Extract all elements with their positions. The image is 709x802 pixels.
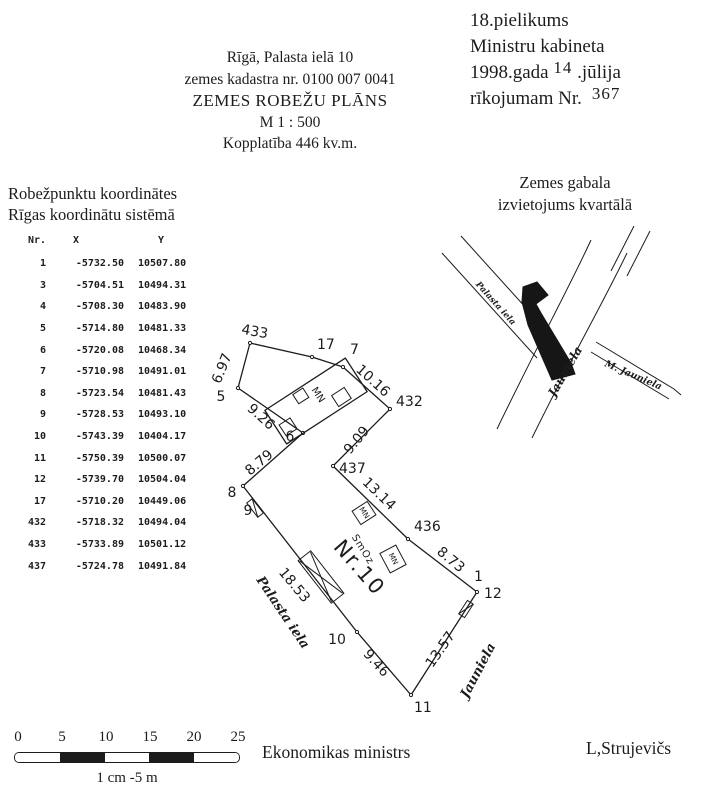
svg-text:MN: MN bbox=[387, 551, 401, 566]
boundary-point-marker bbox=[248, 341, 251, 344]
point-label-17: 17 bbox=[317, 337, 335, 353]
boundary-point-marker bbox=[241, 484, 244, 487]
address-line: Rīgā, Palasta ielā 10 bbox=[140, 47, 440, 69]
annex-line-1: 18.pielikums bbox=[470, 8, 621, 34]
point-label-433: 433 bbox=[240, 322, 269, 342]
scale-bar-strip bbox=[14, 752, 240, 763]
cadastre-line: zemes kadastra nr. 0100 007 0041 bbox=[140, 69, 440, 91]
scale-tick: 10 bbox=[95, 729, 117, 746]
location-map-heading: Zemes gabala izvietojums kvartālā bbox=[455, 172, 675, 216]
page-title: ZEMES ROBEŽU PLĀNS bbox=[140, 90, 440, 112]
boundary-point-marker bbox=[355, 630, 358, 633]
table-row: 9-5728.5310493.10 bbox=[12, 404, 202, 426]
building-mn-label: MN bbox=[309, 385, 327, 405]
minister-title: Ekonomikas ministrs bbox=[262, 742, 410, 763]
scanned-land-plan-page: 18.pielikums Ministru kabineta 1998.gada… bbox=[0, 0, 709, 802]
table-row: 432-5718.3210494.04 bbox=[12, 512, 202, 534]
distance-label: 13.57 bbox=[423, 629, 459, 671]
table-row: 11-5750.3910500.07 bbox=[12, 447, 202, 469]
scale-tick: 0 bbox=[7, 729, 29, 746]
table-row: 10-5743.3910404.17 bbox=[12, 426, 202, 448]
table-row: 5-5714.8010481.33 bbox=[12, 318, 202, 340]
scale-line: M 1 : 500 bbox=[140, 112, 440, 134]
point-label-8: 8 bbox=[228, 485, 237, 501]
distance-label: 9.46 bbox=[360, 646, 393, 680]
scale-tick: 5 bbox=[51, 729, 73, 746]
small-structure-mn: MN bbox=[380, 545, 406, 573]
point-label-9: 9 bbox=[244, 503, 253, 519]
coordinates-heading: Robežpunktu koordinātes Rīgas koordinātu… bbox=[8, 183, 177, 225]
distance-label: 8.79 bbox=[242, 447, 276, 479]
scale-bar: 0 5 10 15 20 25 1 cm -5 m bbox=[13, 729, 241, 793]
point-label-436: 436 bbox=[414, 519, 441, 535]
handwritten-order-number: 367 bbox=[592, 81, 621, 107]
annex-line-4: rīkojumam Nr.367 bbox=[470, 86, 621, 112]
handwritten-day: 14 bbox=[553, 55, 572, 81]
boundary-point-marker bbox=[341, 365, 344, 368]
scale-tick: 25 bbox=[227, 729, 249, 746]
boundary-point-marker bbox=[236, 386, 239, 389]
street-upper-stroke bbox=[611, 226, 634, 271]
boundary-tick bbox=[459, 600, 474, 617]
distance-label: 6.97 bbox=[209, 351, 236, 386]
table-row: 437-5724.7810491.84 bbox=[12, 555, 202, 577]
point-label-12: 12 bbox=[484, 586, 502, 602]
boundary-point-marker bbox=[331, 464, 334, 467]
table-row: 6-5720.0810468.34 bbox=[12, 339, 202, 361]
table-row: 7-5710.9810491.01 bbox=[12, 361, 202, 383]
distance-label: 9.09 bbox=[341, 423, 373, 457]
point-label-11: 11 bbox=[414, 700, 432, 716]
annex-reference-block: 18.pielikums Ministru kabineta 1998.gada… bbox=[470, 8, 621, 112]
area-line: Kopplatība 446 kv.m. bbox=[140, 133, 440, 155]
boundary-point-marker bbox=[409, 693, 412, 696]
scale-tick: 20 bbox=[183, 729, 205, 746]
scale-tick: 15 bbox=[139, 729, 161, 746]
boundary-plan-drawing: MN MN MN 433 17 7 432 437 436 1 bbox=[200, 300, 510, 720]
boundary-point-marker bbox=[310, 355, 313, 358]
map-street-label-m-jauniela: M. Jauniela bbox=[602, 358, 663, 392]
point-label-10: 10 bbox=[328, 632, 346, 648]
boundary-point-marker bbox=[388, 407, 391, 410]
coordinates-table-header: Nr. X Y bbox=[12, 227, 202, 253]
boundary-point-marker bbox=[406, 537, 409, 540]
table-row: 3-5704.5110494.31 bbox=[12, 275, 202, 297]
table-row: 17-5710.2010449.06 bbox=[12, 491, 202, 513]
point-label-437: 437 bbox=[339, 461, 366, 477]
title-block: Rīgā, Palasta ielā 10 zemes kadastra nr.… bbox=[140, 47, 440, 155]
minister-name: L,Strujevičs bbox=[586, 738, 671, 759]
annex-line-2: Ministru kabineta bbox=[470, 34, 621, 60]
building-outline: MN bbox=[265, 358, 367, 444]
scale-caption: 1 cm -5 m bbox=[13, 770, 241, 787]
svg-text:MN: MN bbox=[357, 505, 371, 520]
coordinates-table: Nr. X Y 1-5732.5010507.80 3-5704.5110494… bbox=[12, 227, 202, 577]
boundary-point-marker bbox=[475, 590, 478, 593]
point-label-5: 5 bbox=[217, 389, 226, 405]
table-row: 4-5708.3010483.90 bbox=[12, 296, 202, 318]
table-row: 12-5739.7010504.04 bbox=[12, 469, 202, 491]
table-row: 1-5732.5010507.80 bbox=[12, 253, 202, 275]
table-row: 8-5723.5410481.43 bbox=[12, 383, 202, 405]
street-upper-stroke bbox=[627, 231, 650, 276]
table-row: 433-5733.8910501.12 bbox=[12, 534, 202, 556]
point-label-6: 6 bbox=[286, 429, 295, 445]
point-label-432: 432 bbox=[396, 394, 423, 410]
point-label-7: 7 bbox=[350, 342, 359, 358]
plan-street-label-jauniela: Jauniela bbox=[456, 641, 499, 704]
point-label-1: 1 bbox=[474, 569, 483, 585]
